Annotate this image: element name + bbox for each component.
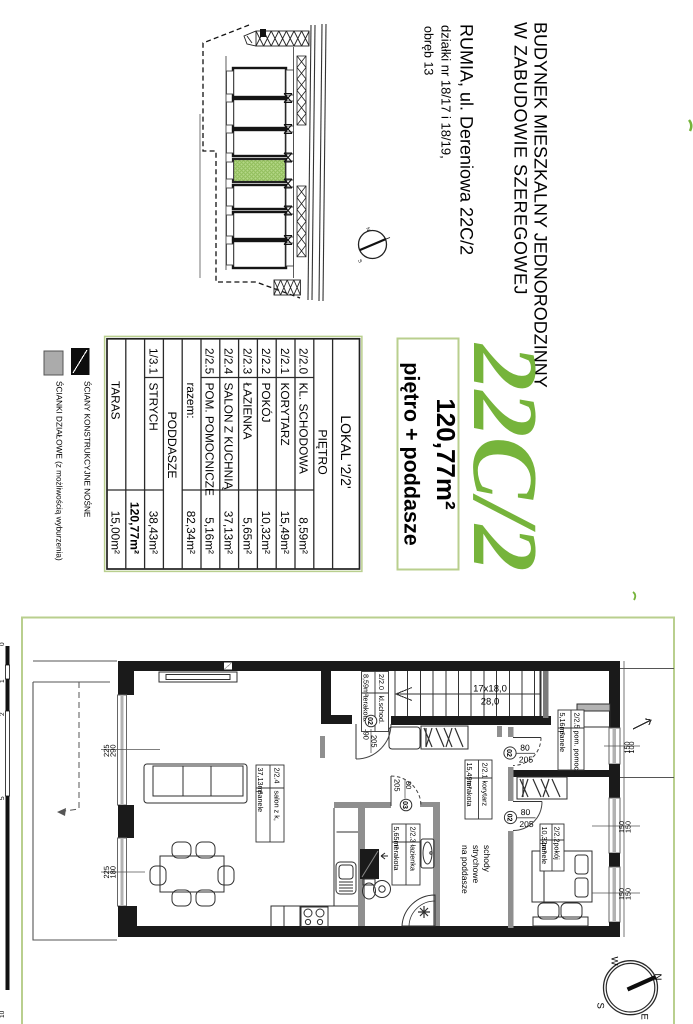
svg-text:2/2.0: 2/2.0 — [377, 674, 386, 690]
svg-text:terakota: terakota — [392, 845, 401, 871]
svg-text:37,13m²: 37,13m² — [222, 511, 236, 554]
svg-text:38,43m²: 38,43m² — [146, 511, 160, 554]
svg-text:S: S — [595, 1003, 606, 1009]
svg-text:ŁAZIENKA: ŁAZIENKA — [240, 383, 254, 440]
svg-text:pokój: pokój — [553, 843, 562, 861]
svg-text:8,59m²: 8,59m² — [297, 517, 311, 554]
svg-text:2/2.3: 2/2.3 — [240, 348, 254, 375]
svg-text:panele: panele — [540, 843, 549, 865]
svg-text:piętro + poddasze: piętro + poddasze — [400, 362, 424, 545]
svg-text:205: 205 — [519, 755, 533, 765]
svg-text:panele: panele — [256, 791, 265, 813]
svg-text:17x18,0: 17x18,0 — [473, 684, 507, 695]
svg-text:korytarz: korytarz — [481, 781, 490, 807]
svg-text:łazienka: łazienka — [409, 845, 418, 871]
svg-text:2/2.3: 2/2.3 — [409, 827, 418, 843]
svg-text:kl.schod.: kl.schod. — [377, 696, 386, 724]
svg-text:2/2.1: 2/2.1 — [278, 348, 292, 374]
svg-text:10,32m²: 10,32m² — [259, 511, 273, 554]
svg-text:2/2.5: 2/2.5 — [573, 713, 582, 729]
svg-text:POM. POMOCNICZE: POM. POMOCNICZE — [203, 383, 217, 497]
svg-text:terakota: terakota — [465, 781, 474, 807]
svg-text:W ZABUDOWIE SZEREGOWEJ: W ZABUDOWIE SZEREGOWEJ — [511, 22, 531, 295]
svg-text:N: N — [652, 974, 663, 981]
svg-text:120,77m²: 120,77m² — [431, 398, 461, 510]
svg-text:strychowe: strychowe — [471, 845, 481, 884]
svg-text:80: 80 — [520, 743, 530, 753]
svg-text:LOKAL '2/2': LOKAL '2/2' — [338, 415, 354, 488]
svg-text:2/2.4: 2/2.4 — [222, 348, 236, 375]
svg-text:02: 02 — [505, 749, 512, 757]
svg-text:razem:: razem: — [184, 383, 198, 419]
svg-text:205: 205 — [393, 779, 402, 792]
svg-text:0: 0 — [0, 642, 6, 646]
svg-text:150: 150 — [624, 888, 633, 900]
svg-text:5,16m²: 5,16m² — [203, 517, 217, 554]
svg-text:W: W — [609, 957, 620, 966]
svg-text:5: 5 — [0, 796, 6, 800]
svg-text:2/2.1: 2/2.1 — [481, 763, 490, 779]
svg-text:na poddasze: na poddasze — [460, 845, 470, 894]
svg-text:15,49m²: 15,49m² — [278, 511, 292, 554]
svg-text:pom. pomoc.: pom. pomoc. — [573, 731, 582, 773]
svg-text:2/2.4: 2/2.4 — [273, 768, 282, 784]
svg-text:BUDYNEK MIESZKALNY JEDNORODZIN: BUDYNEK MIESZKALNY JEDNORODZINNY — [531, 22, 551, 388]
svg-text:PIĘTRO: PIĘTRO — [316, 429, 330, 474]
svg-text:obręb 13: obręb 13 — [422, 26, 436, 75]
svg-text:03: 03 — [401, 801, 408, 809]
svg-text:POKÓJ: POKÓJ — [259, 383, 273, 423]
svg-text:8,59m²: 8,59m² — [362, 674, 371, 697]
svg-text:180: 180 — [109, 866, 118, 879]
svg-text:-90: -90 — [362, 729, 371, 740]
svg-text:2/2.2: 2/2.2 — [553, 827, 562, 843]
svg-text:TARAS: TARAS — [109, 381, 123, 420]
svg-text:100: 100 — [627, 742, 636, 754]
svg-text:2: 2 — [0, 712, 6, 716]
svg-text:2/2.2: 2/2.2 — [259, 348, 273, 374]
svg-text:salon z k,: salon z k, — [273, 791, 282, 821]
svg-text:działki nr 18/17 i 18/19,: działki nr 18/17 i 18/19, — [439, 25, 454, 159]
svg-text:15,00m²: 15,00m² — [109, 511, 123, 554]
svg-text:10: 10 — [0, 1010, 6, 1018]
svg-text:290: 290 — [109, 744, 118, 757]
svg-text:panele: panele — [558, 731, 567, 753]
svg-text:120,77m²: 120,77m² — [128, 502, 142, 554]
svg-text:RUMIA, ul. Dereniowa 22C/2: RUMIA, ul. Dereniowa 22C/2 — [457, 24, 477, 255]
svg-text:205: 205 — [519, 819, 533, 829]
svg-text:SALON Z KUCHNIĄ: SALON Z KUCHNIĄ — [222, 383, 236, 490]
svg-text:1/3.1: 1/3.1 — [146, 348, 160, 374]
svg-text:22C/2: 22C/2 — [453, 342, 556, 571]
svg-text:150: 150 — [624, 821, 633, 833]
svg-text:02: 02 — [506, 814, 513, 822]
svg-text:02: 02 — [366, 717, 373, 725]
svg-text:80: 80 — [521, 807, 531, 817]
svg-text:28,0: 28,0 — [481, 697, 500, 708]
svg-text:ŚCIANKI DZIAŁOWE (z możliwości: ŚCIANKI DZIAŁOWE (z możliwością wyburzen… — [55, 381, 65, 561]
svg-text:E: E — [639, 1014, 650, 1020]
svg-text:KL. SCHODOWA: KL. SCHODOWA — [297, 383, 311, 474]
svg-text:2/2.0: 2/2.0 — [297, 348, 311, 375]
svg-text:82,34m²: 82,34m² — [184, 511, 198, 554]
svg-text:2/2.5: 2/2.5 — [203, 348, 217, 375]
svg-text:schody: schody — [482, 845, 492, 873]
svg-text:KORYTARZ: KORYTARZ — [278, 383, 292, 446]
svg-text:ŚCIANY KONSTRUKCYJNE NOŚNE: ŚCIANY KONSTRUKCYJNE NOŚNE — [83, 381, 93, 518]
svg-text:PODDASZE: PODDASZE — [165, 411, 179, 478]
svg-text:STRYCH: STRYCH — [146, 383, 160, 431]
svg-text:5,65m²: 5,65m² — [240, 517, 254, 554]
svg-text:1: 1 — [0, 679, 6, 683]
